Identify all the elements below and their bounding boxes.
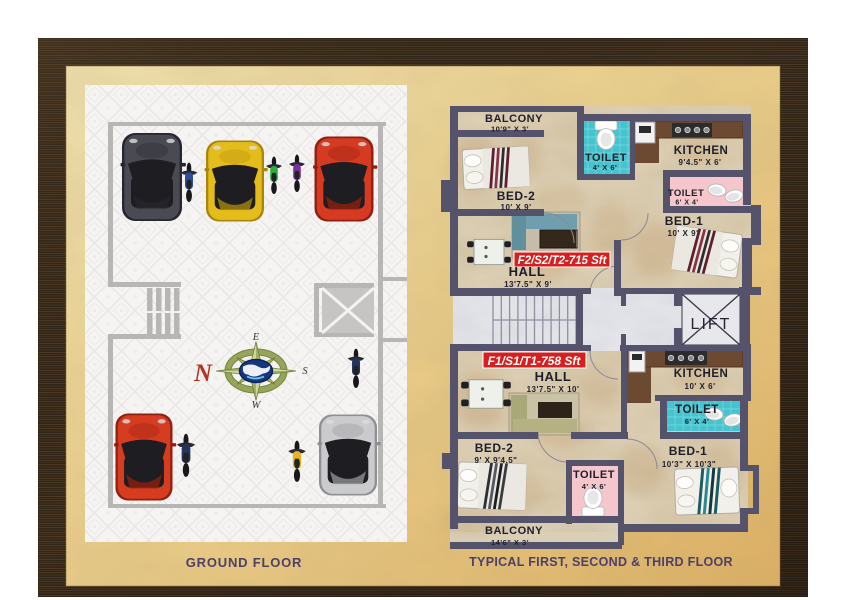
svg-text:BALCONY: BALCONY xyxy=(485,113,543,125)
svg-text:TOILET: TOILET xyxy=(573,469,615,481)
svg-text:4' X 6': 4' X 6' xyxy=(582,482,607,491)
svg-text:TOILET: TOILET xyxy=(675,404,719,416)
svg-text:10' X 6': 10' X 6' xyxy=(685,382,716,391)
svg-text:14'6" X 3': 14'6" X 3' xyxy=(491,538,529,547)
svg-text:LIFT: LIFT xyxy=(691,316,732,333)
svg-text:N: N xyxy=(193,360,213,387)
svg-text:BED-2: BED-2 xyxy=(497,189,536,203)
svg-text:6' X 4': 6' X 4' xyxy=(685,417,710,426)
svg-text:BED-1: BED-1 xyxy=(665,214,704,228)
svg-text:BALCONY: BALCONY xyxy=(485,525,543,537)
svg-text:E: E xyxy=(252,332,260,343)
svg-text:10' X 9': 10' X 9' xyxy=(501,203,532,212)
svg-text:BED-2: BED-2 xyxy=(475,441,514,455)
svg-text:TYPICAL FIRST, SECOND & THIRD: TYPICAL FIRST, SECOND & THIRD FLOOR xyxy=(469,555,733,569)
svg-text:F1/S1/T1-758 Sft: F1/S1/T1-758 Sft xyxy=(488,354,582,368)
svg-text:9' X 9'4.5": 9' X 9'4.5" xyxy=(475,456,518,465)
svg-text:HALL: HALL xyxy=(535,369,572,384)
svg-text:6' X 4': 6' X 4' xyxy=(675,200,698,207)
svg-text:KITCHEN: KITCHEN xyxy=(674,368,729,380)
svg-text:HALL: HALL xyxy=(509,264,546,279)
svg-text:W: W xyxy=(252,400,262,411)
svg-text:10' X 9': 10' X 9' xyxy=(668,229,699,238)
svg-text:S: S xyxy=(302,366,308,377)
svg-text:BED-1: BED-1 xyxy=(669,444,708,458)
svg-text:13'7.5" X 10': 13'7.5" X 10' xyxy=(527,385,580,394)
svg-text:13'7.5" X 9': 13'7.5" X 9' xyxy=(504,280,552,289)
svg-text:KITCHEN: KITCHEN xyxy=(674,145,729,157)
svg-text:GROUND FLOOR: GROUND FLOOR xyxy=(186,555,302,570)
svg-text:9'4.5" X 6': 9'4.5" X 6' xyxy=(679,158,722,167)
svg-text:10'9" X 3': 10'9" X 3' xyxy=(491,125,529,134)
svg-text:10'3" X 10'3": 10'3" X 10'3" xyxy=(662,460,716,469)
svg-text:TOILET: TOILET xyxy=(668,188,705,199)
svg-text:4' X 6': 4' X 6' xyxy=(593,163,618,172)
